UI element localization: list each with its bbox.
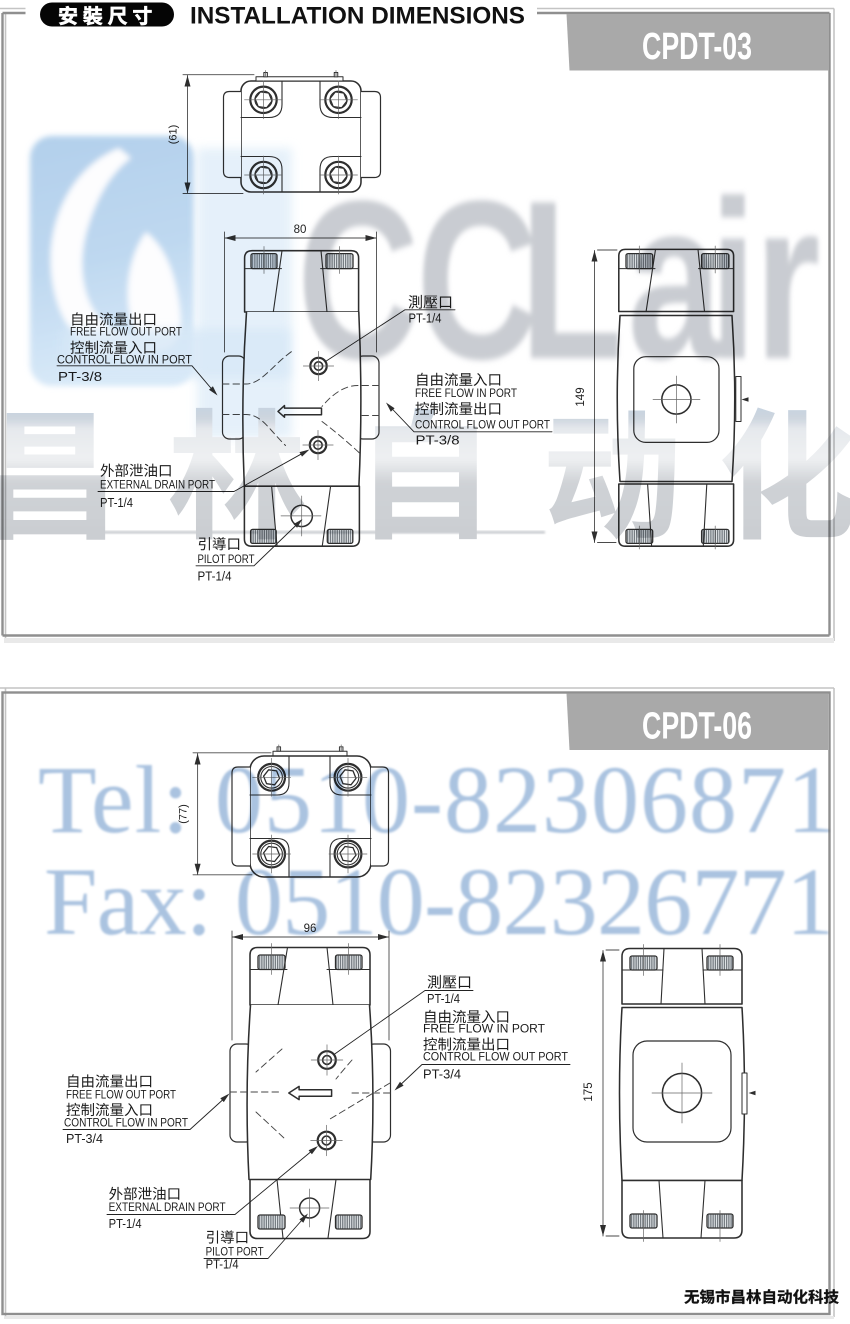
svg-text:CONTROL FLOW OUT PORT: CONTROL FLOW OUT PORT <box>423 1050 569 1064</box>
svg-text:PT-3/4: PT-3/4 <box>423 1068 461 1082</box>
svg-text:PT-1/4: PT-1/4 <box>206 1258 239 1272</box>
svg-text:INSTALLATION DIMENSIONS: INSTALLATION DIMENSIONS <box>190 3 525 30</box>
svg-text:FREE FLOW IN PORT: FREE FLOW IN PORT <box>423 1022 546 1036</box>
svg-text:PT-1/4: PT-1/4 <box>198 570 232 584</box>
svg-text:Fax: 0510-82326771: Fax: 0510-82326771 <box>44 848 834 955</box>
svg-text:PILOT PORT: PILOT PORT <box>206 1245 265 1259</box>
svg-text:CCLair: CCLair <box>297 154 820 406</box>
svg-text:PT-3/4: PT-3/4 <box>66 1132 103 1146</box>
svg-text:Tel: 0510-82306871: Tel: 0510-82306871 <box>38 746 835 853</box>
svg-text:PT-1/4: PT-1/4 <box>427 992 460 1006</box>
svg-text:CPDT-03: CPDT-03 <box>642 26 752 68</box>
svg-text:FREE FLOW OUT PORT: FREE FLOW OUT PORT <box>66 1088 177 1102</box>
svg-text:PILOT PORT: PILOT PORT <box>198 552 256 566</box>
svg-text:CPDT-06: CPDT-06 <box>642 706 752 748</box>
svg-text:CONTROL FLOW IN PORT: CONTROL FLOW IN PORT <box>64 1116 189 1130</box>
svg-text:PT-1/4: PT-1/4 <box>109 1217 142 1231</box>
svg-text:EXTERNAL DRAIN PORT: EXTERNAL DRAIN PORT <box>109 1200 227 1214</box>
svg-text:175: 175 <box>583 1082 595 1101</box>
